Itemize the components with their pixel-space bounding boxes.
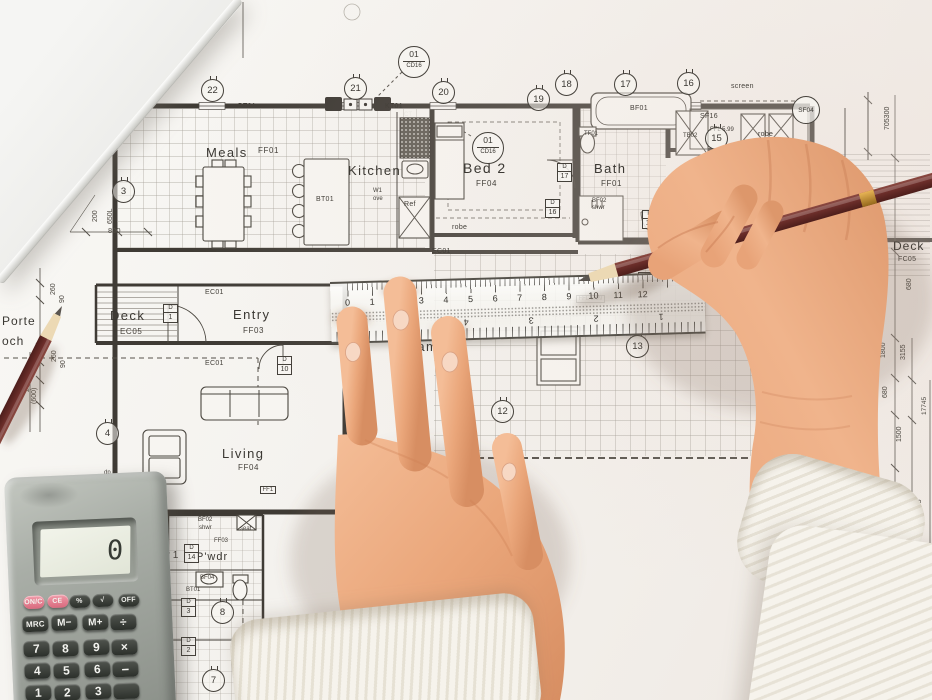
calc-button[interactable]: 1 [25,684,52,700]
calc-button-label: ON/C [24,598,43,606]
calc-button-label: 5 [63,663,70,677]
calc-button[interactable]: 7 [23,640,50,657]
calc-button-label: M+ [88,616,103,628]
calc-button-label: M− [57,617,72,629]
calc-button-label: − [121,661,129,676]
calc-button[interactable]: M− [51,614,78,631]
calc-button-label: ÷ [120,615,127,629]
calc-button[interactable]: 6 [84,661,111,678]
calc-button[interactable]: − [112,660,139,677]
calc-button[interactable]: M+ [82,614,109,631]
calc-button-label: OFF [121,596,136,604]
calc-button-label: 9 [93,640,100,654]
calc-button-label: 1 [35,686,42,700]
calc-button[interactable]: % [69,594,91,608]
calc-button-label: × [121,640,129,654]
calc-button[interactable] [113,682,140,699]
calc-button-label: 6 [94,662,101,676]
calc-button[interactable]: √ [92,593,114,607]
calc-button-label: 2 [64,685,71,699]
calc-button[interactable]: 4 [24,662,51,679]
calc-button-label: 3 [95,684,102,698]
calc-button[interactable]: ÷ [110,613,137,630]
photo-of-floor-plan-scene: Meals FF01 Kitchen Bed 2 FF04 Bath FF01 … [0,0,932,700]
calc-button-label: MRC [26,619,45,629]
calc-button[interactable]: OFF [118,593,140,607]
calc-button-label: % [76,598,83,605]
calc-button[interactable]: 9 [83,639,110,656]
calc-button[interactable]: 2 [54,684,81,700]
calc-button[interactable]: MRC [22,615,49,632]
calculator-display-bezel: 0 [32,517,139,585]
calc-button-label: 8 [62,641,69,655]
calc-button[interactable]: CE [47,594,69,608]
calc-button[interactable]: 8 [52,640,79,657]
calc-button[interactable]: 5 [53,662,80,679]
calculator-display-value: 0 [107,534,124,566]
calculator-display: 0 [40,526,130,578]
calc-button[interactable]: × [111,638,138,655]
calc-button[interactable]: 3 [85,683,112,700]
calc-button-label: 7 [33,642,40,656]
calc-button-label: √ [100,597,104,604]
calc-button-label: 4 [34,664,41,678]
calc-button-label: CE [52,598,62,605]
calc-button[interactable]: ON/C [23,595,45,609]
calculator: 0 ON/C CE % √ OFF MRC M− M+ ÷ 7 8 9 × 4 … [4,471,178,700]
finger [352,322,362,430]
